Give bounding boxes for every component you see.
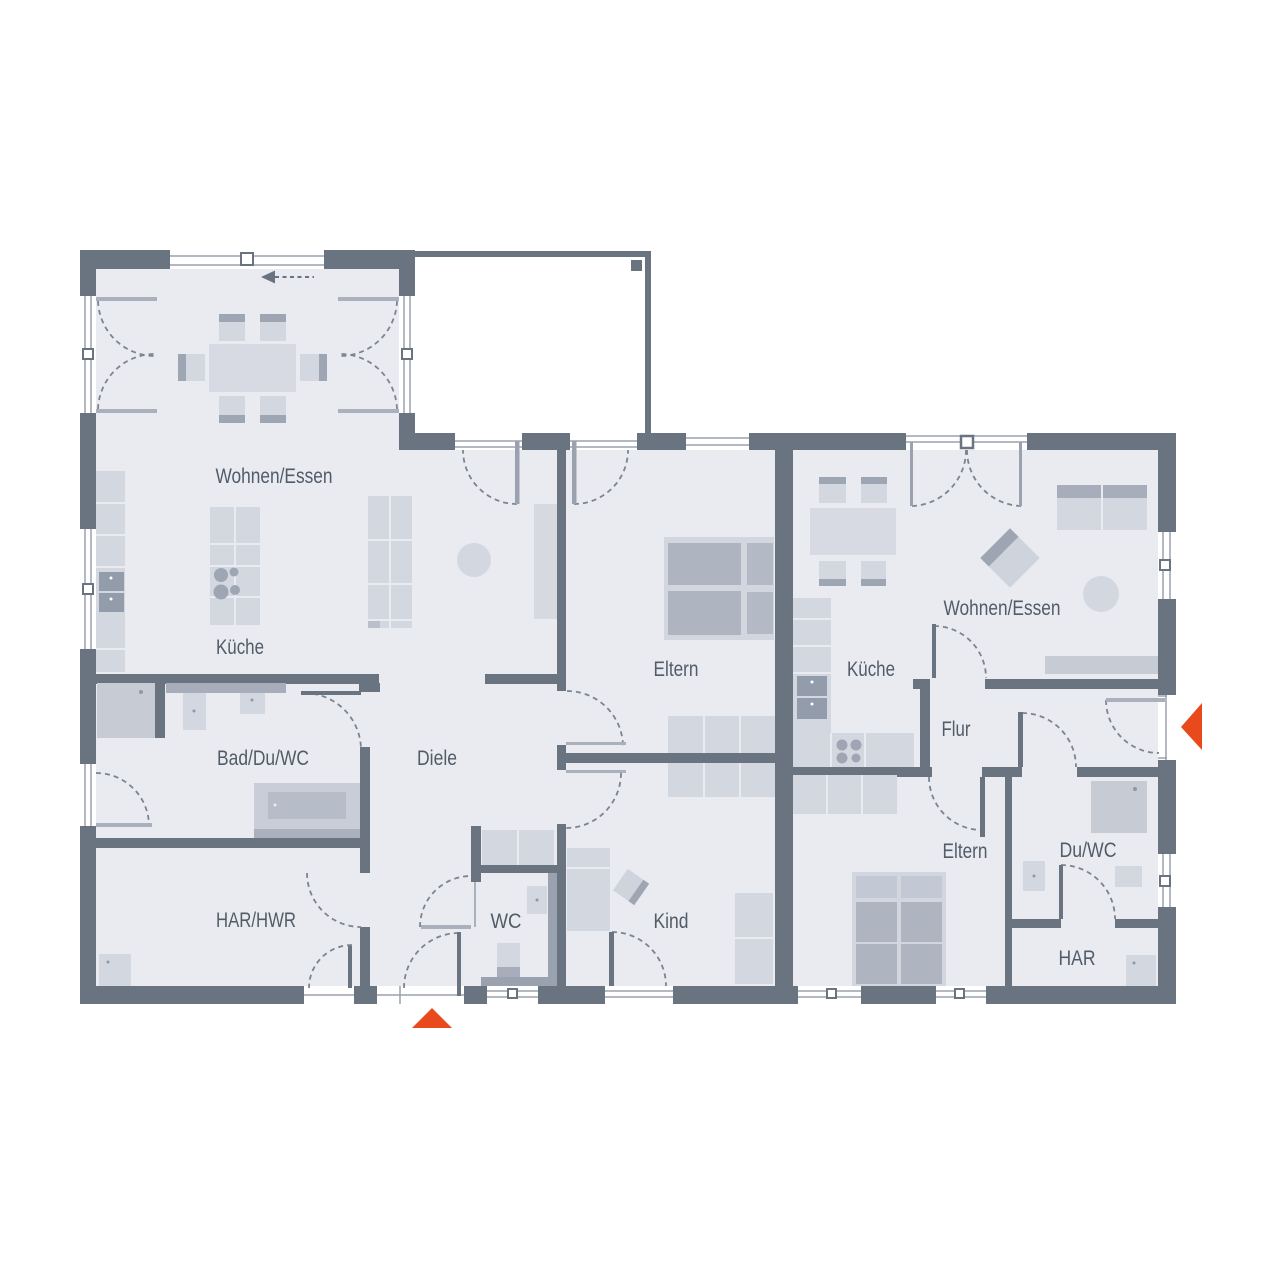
- svg-text:Eltern: Eltern: [943, 839, 988, 863]
- svg-text:Diele: Diele: [417, 746, 457, 770]
- svg-text:Wohnen/Essen: Wohnen/Essen: [944, 596, 1061, 620]
- svg-text:Bad/Du/WC: Bad/Du/WC: [217, 746, 309, 770]
- svg-text:HAR: HAR: [1059, 946, 1096, 970]
- svg-text:Küche: Küche: [847, 657, 895, 681]
- svg-text:Eltern: Eltern: [654, 657, 699, 681]
- svg-text:Du/WC: Du/WC: [1060, 838, 1117, 862]
- svg-text:Wohnen/Essen: Wohnen/Essen: [216, 464, 333, 488]
- svg-text:Flur: Flur: [942, 717, 971, 741]
- svg-text:HAR/HWR: HAR/HWR: [216, 908, 296, 932]
- svg-text:Kind: Kind: [654, 909, 689, 933]
- svg-text:WC: WC: [491, 909, 522, 933]
- svg-text:Küche: Küche: [216, 635, 264, 659]
